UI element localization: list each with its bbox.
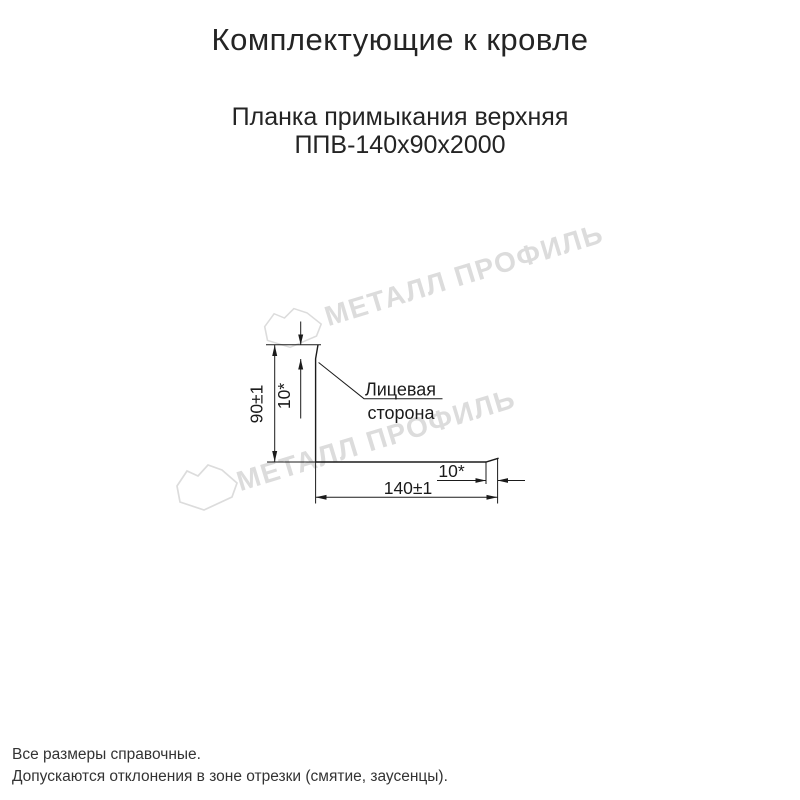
profile-drawing: 90±1 10* 140±1 10* Лицевая сторона (0, 0, 800, 800)
dim-end-lip-label: 10* (438, 461, 464, 481)
spec-sheet-page: Комплектующие к кровле Планка примыкания… (0, 0, 800, 800)
dim-top-lip-label: 10* (274, 383, 294, 409)
face-side-label-line2: сторона (367, 403, 435, 423)
face-side-label-line1: Лицевая (365, 380, 436, 400)
footer-note-1: Все размеры справочные. (12, 744, 448, 766)
dim-height-label: 90±1 (247, 385, 267, 424)
footer-note-2: Допускаются отклонения в зоне отрезки (с… (12, 766, 448, 788)
footer-notes: Все размеры справочные. Допускаются откл… (12, 744, 448, 787)
dim-width-label: 140±1 (384, 478, 433, 498)
